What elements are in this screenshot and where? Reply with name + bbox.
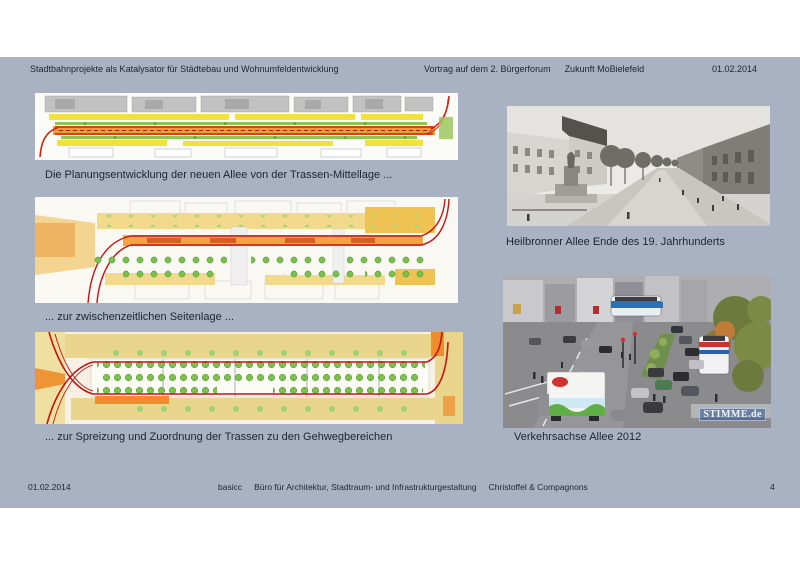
plan-map-spreizung-graphic [35, 332, 463, 424]
photo-caption-traffic: Verkehrsachse Allee 2012 [514, 431, 641, 443]
photo-caption-historic: Heilbronner Allee Ende des 19. Jahrhunde… [506, 236, 725, 248]
plan-caption-seitenlage: ... zur zwischenzeitlichen Seitenlage ..… [45, 311, 234, 323]
slide-header-date: 01.02.2014 [712, 64, 757, 74]
event-name: Zukunft MoBielefeld [565, 64, 645, 74]
bus-top [611, 296, 661, 316]
photo-traffic-allee: STIMME.de [503, 276, 771, 428]
footer-credit-firm: basicc [218, 482, 242, 492]
event-label: Vortrag auf dem 2. Bürgerforum [424, 64, 551, 74]
photo-historic-graphic [507, 106, 770, 226]
footer-credit: basiccBüro für Architektur, Stadtraum- u… [218, 482, 588, 492]
plan-map-mittellage [35, 93, 458, 160]
plan-map-seitenlage [35, 197, 458, 303]
presentation-page: Stadtbahnprojekte als Katalysator für St… [0, 0, 800, 566]
photo-traffic-graphic [503, 276, 771, 428]
photo-historic-allee [507, 106, 770, 226]
footer-credit-desc: Büro für Architektur, Stadtraum- und Inf… [254, 482, 477, 492]
slide: Stadtbahnprojekte als Katalysator für St… [0, 57, 800, 508]
plan-map-seitenlage-graphic [35, 197, 458, 303]
footer-date: 01.02.2014 [28, 482, 71, 492]
plan-caption-spreizung: ... zur Spreizung und Zuordnung der Tras… [45, 431, 392, 443]
photo-watermark: STIMME.de [699, 408, 766, 421]
city-skyline [503, 276, 707, 322]
footer-credit-names: Christoffel & Compagnons [489, 482, 588, 492]
delivery-truck [539, 372, 605, 421]
plan-map-mittellage-graphic [35, 93, 458, 160]
slide-header-event: Vortrag auf dem 2. BürgerforumZukunft Mo… [424, 64, 644, 74]
plan-map-spreizung [35, 332, 463, 424]
footer-page-number: 4 [770, 482, 775, 492]
plan-caption-mittellage: Die Planungsentwicklung der neuen Allee … [45, 169, 392, 181]
slide-header-title: Stadtbahnprojekte als Katalysator für St… [30, 64, 339, 74]
